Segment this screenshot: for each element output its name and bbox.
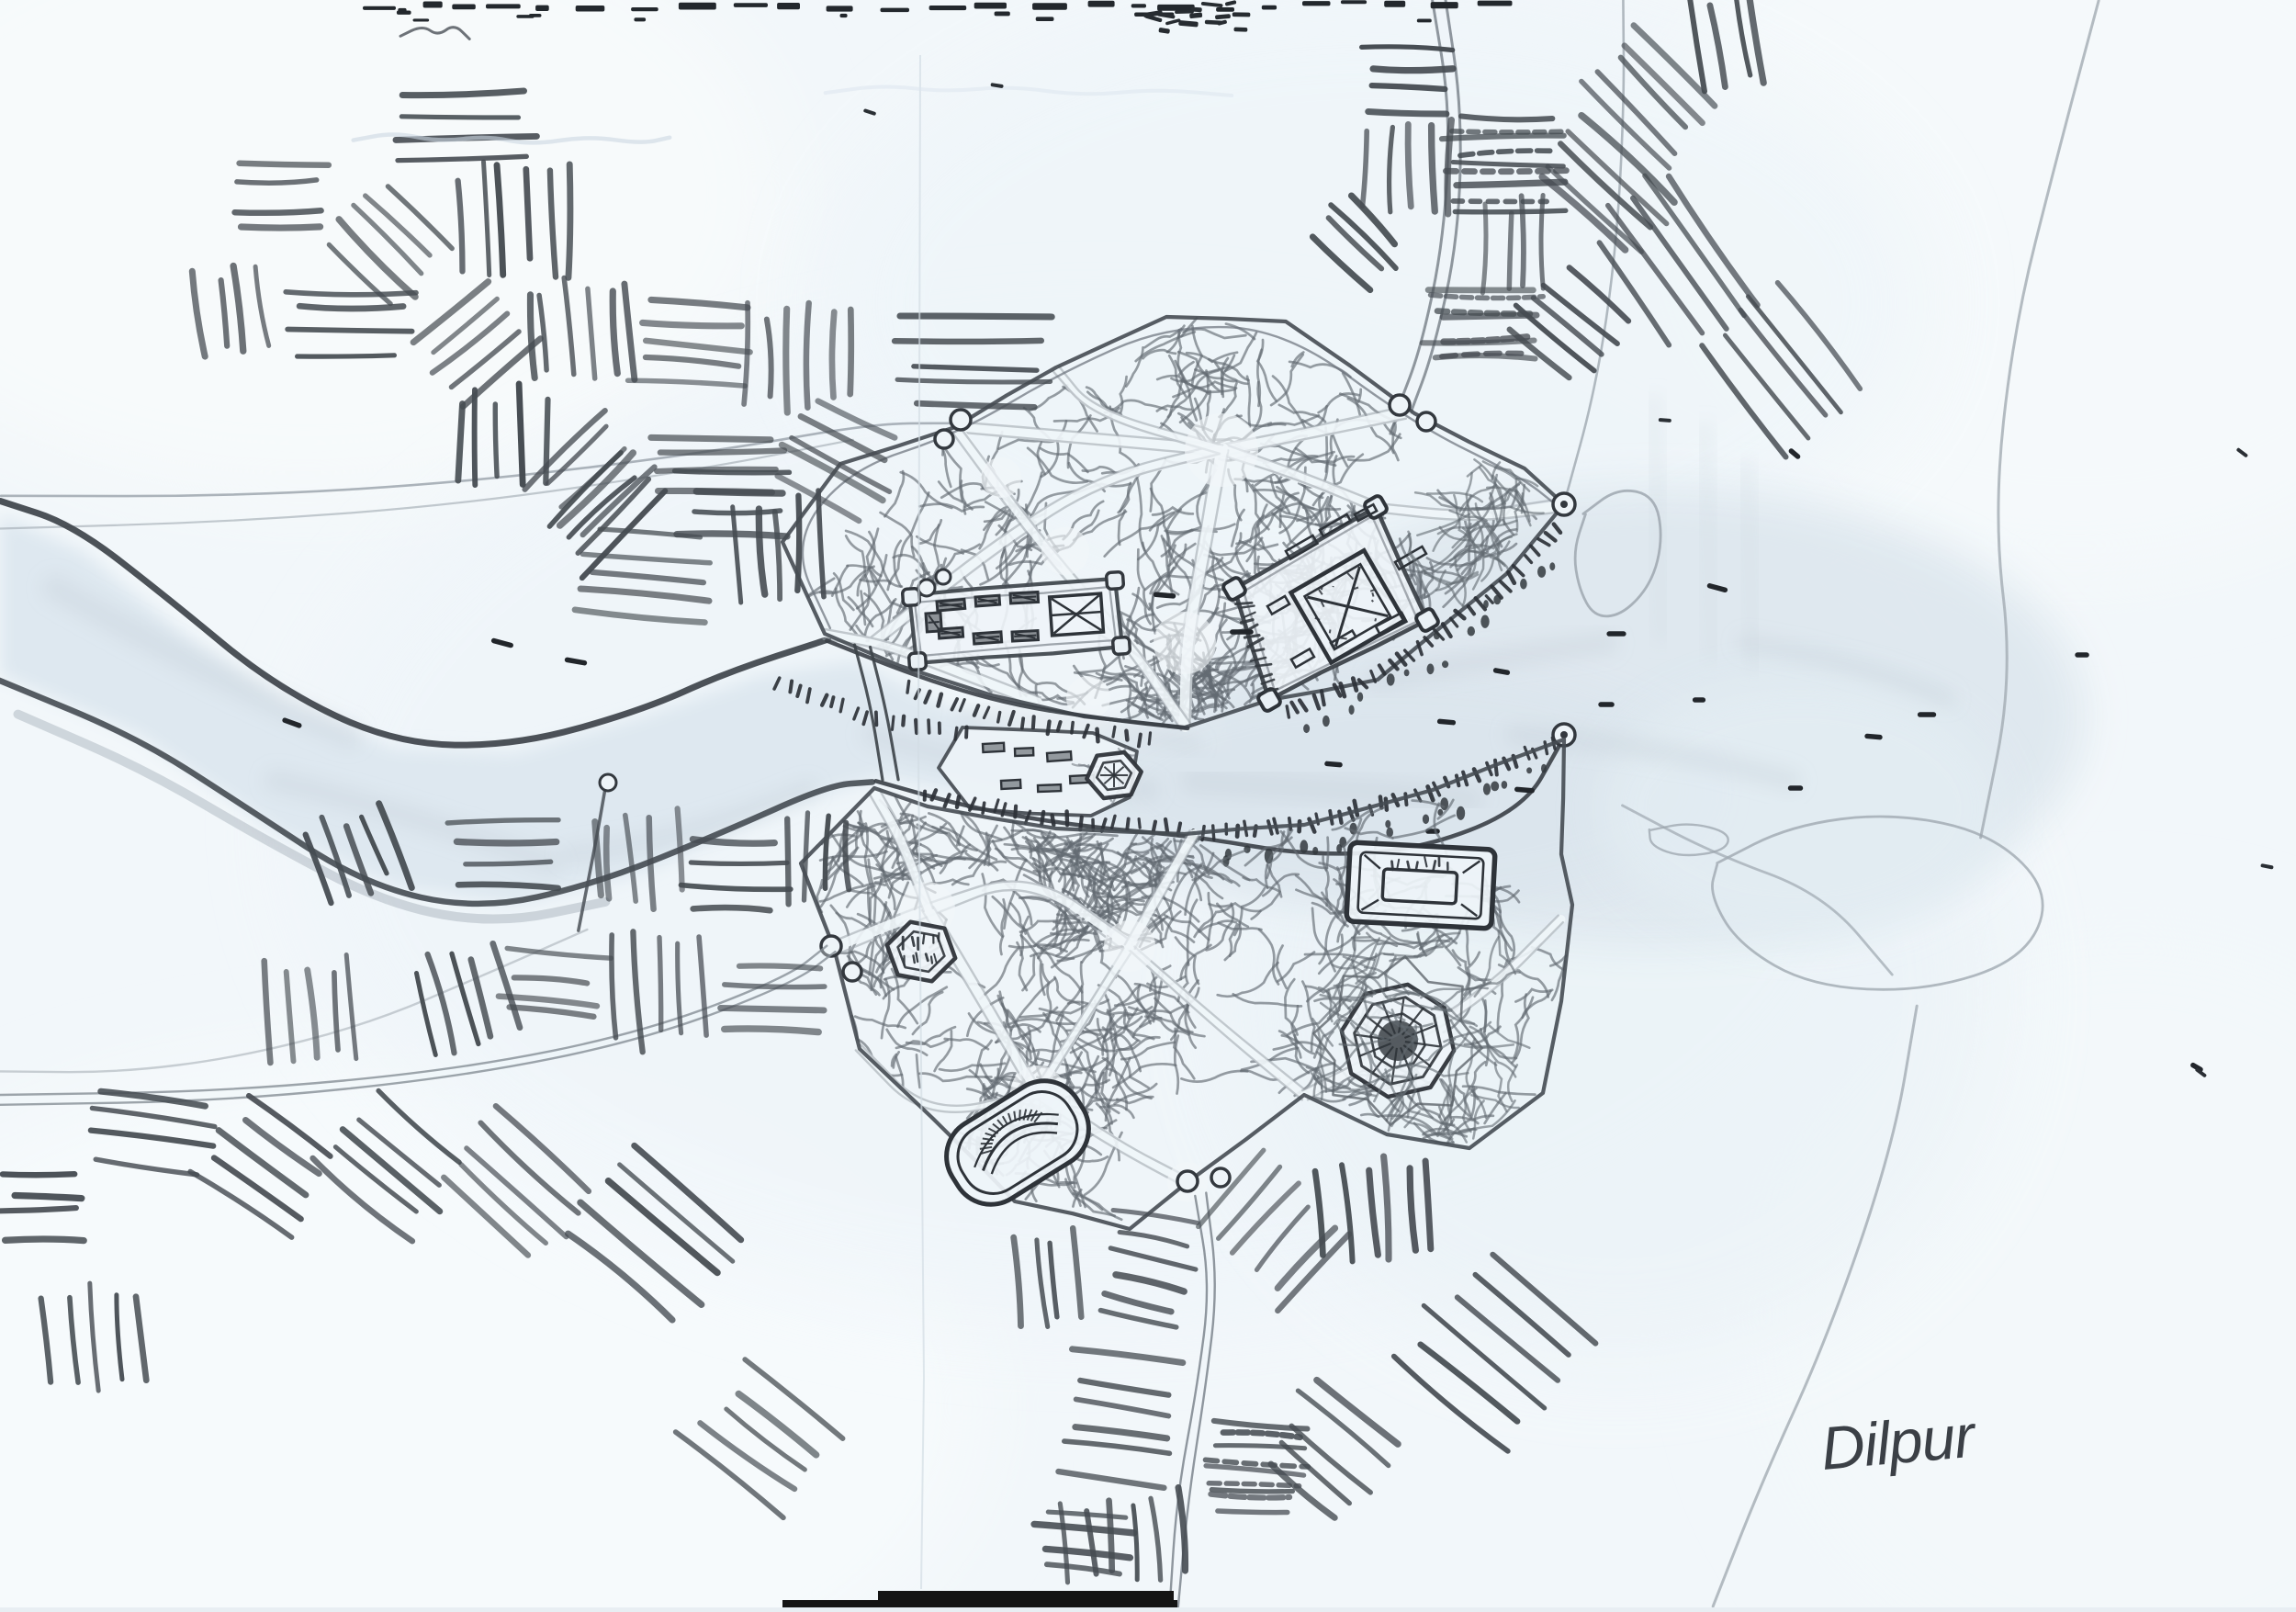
svg-text:Dilpur: Dilpur xyxy=(1818,1401,1980,1482)
